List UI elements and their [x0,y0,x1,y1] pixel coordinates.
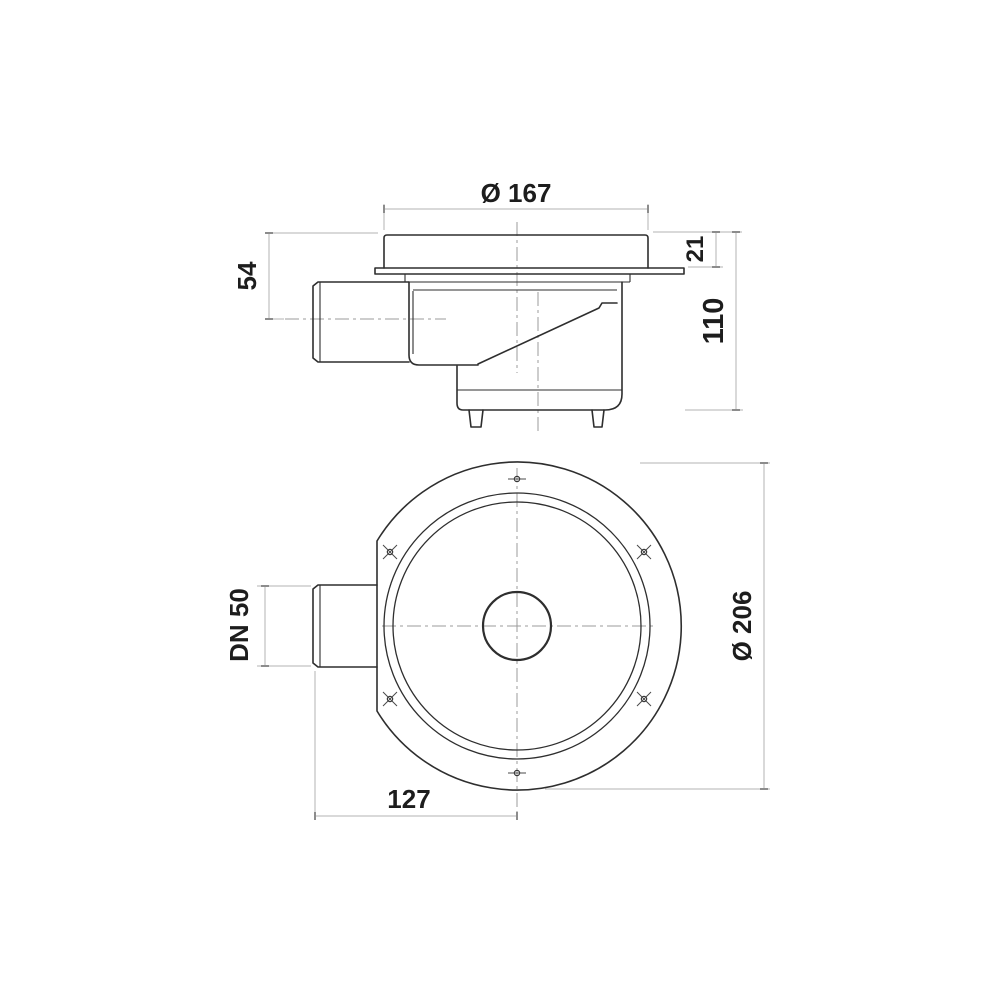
dim-label-21: 21 [682,236,709,263]
foot-right [592,410,604,427]
foot-left [469,410,483,427]
plan-view: DN 50 Ø 206 127 [224,462,770,820]
dimension-21: 21 [653,232,742,267]
dim-label-110: 110 [698,298,730,345]
dn50-dimension-lines [257,586,311,666]
outlet-pipe-side-outline [313,282,409,362]
flange-plate-outline [375,268,684,274]
dimension-dia206: Ø 206 [545,463,770,789]
side-view: Ø 167 54 21 110 [232,178,743,431]
internal-slope-line [478,303,617,364]
technical-drawing-page: Ø 167 54 21 110 [0,0,1000,1000]
outlet-pipe-plan-outline [313,585,377,667]
dim-label-dn50: DN 50 [224,588,254,662]
body-left-wall [409,282,478,365]
dim54-dimension-lines [265,233,378,319]
grate-outline [384,235,648,268]
dim-label-127: 127 [387,784,430,814]
dim-label-dia206: Ø 206 [727,591,757,662]
dimension-dia167: Ø 167 [384,178,648,230]
dimension-54: 54 [232,233,378,319]
dim-label-dia167: Ø 167 [481,178,552,208]
dim-label-54: 54 [232,261,262,290]
technical-drawing-canvas: Ø 167 54 21 110 [0,0,1000,1000]
body-right-wall-and-sump [457,282,622,410]
dimension-dn50: DN 50 [224,586,311,666]
dimension-127: 127 [315,671,517,820]
